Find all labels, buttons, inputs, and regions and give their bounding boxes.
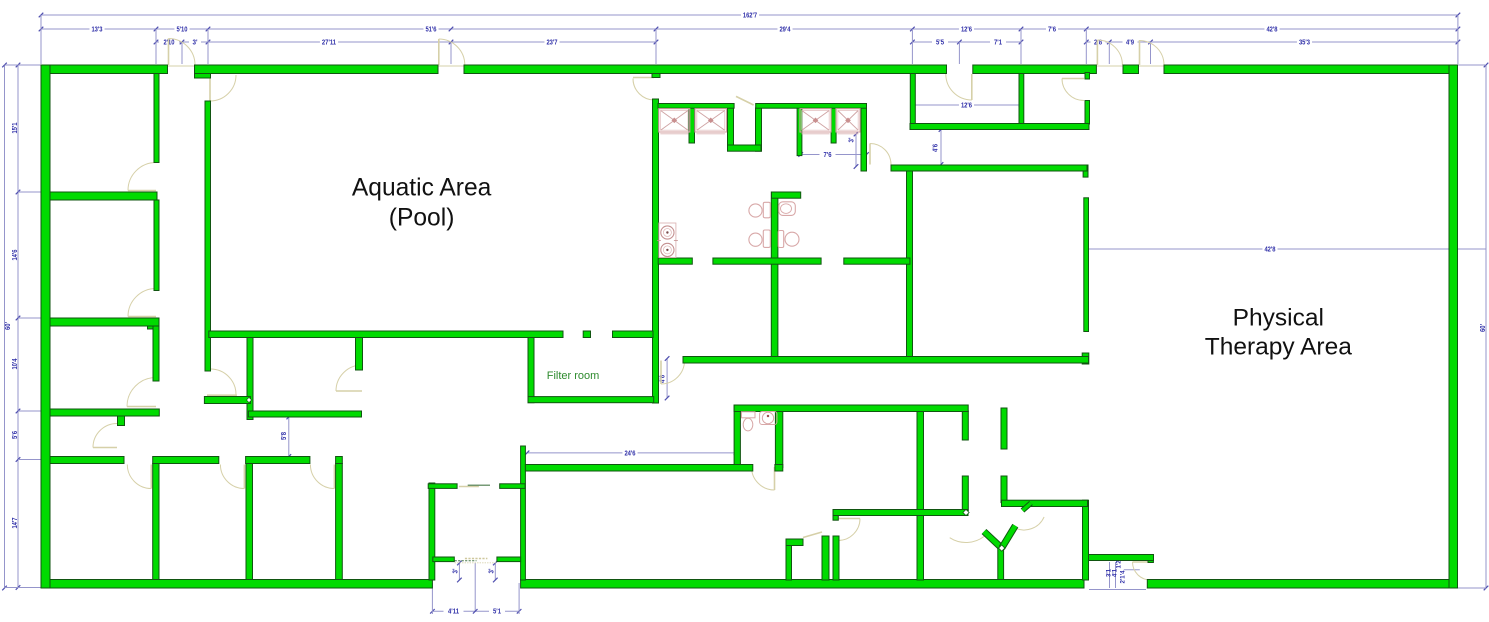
svg-text:7'6: 7'6 [824,150,832,159]
svg-text:4'6: 4'6 [932,144,939,152]
svg-text:60': 60' [1478,324,1487,332]
svg-text:4'1: 4'1 [1111,569,1118,577]
svg-text:42'8: 42'8 [1264,244,1275,253]
svg-text:15'1: 15'1 [10,122,19,133]
svg-text:24'6: 24'6 [624,448,635,457]
svg-text:23'7: 23'7 [546,37,557,46]
svg-text:3': 3' [193,37,198,46]
svg-text:162'7: 162'7 [743,10,757,19]
svg-text:29'4: 29'4 [779,24,790,33]
svg-text:12'6: 12'6 [961,100,972,109]
svg-text:2'1'4: 2'1'4 [1119,570,1126,583]
svg-text:Aquatic Area: Aquatic Area [352,175,492,202]
svg-text:Filter room: Filter room [547,370,600,382]
svg-text:3': 3' [452,568,459,573]
svg-text:60': 60' [3,322,12,330]
svg-text:5'5: 5'5 [936,37,944,46]
svg-text:7'6: 7'6 [1048,24,1056,33]
svg-text:(Pool): (Pool) [389,205,455,232]
svg-text:5'1: 5'1 [493,607,501,616]
svg-text:5'6: 5'6 [10,431,19,439]
svg-text:10'4: 10'4 [10,358,19,369]
svg-text:13'3: 13'3 [91,24,102,33]
svg-text:Physical: Physical [1233,305,1324,332]
svg-text:7'1: 7'1 [994,37,1002,46]
svg-text:27'11: 27'11 [322,37,336,46]
svg-text:12'6: 12'6 [961,24,972,33]
svg-text:3': 3' [488,568,495,573]
svg-text:42'8: 42'8 [1266,24,1277,33]
svg-text:4'9: 4'9 [1126,37,1134,46]
svg-text:51'6: 51'6 [425,24,436,33]
svg-text:4'11: 4'11 [448,607,459,616]
svg-text:5'10: 5'10 [176,24,187,33]
svg-text:3': 3' [848,137,855,142]
svg-text:14'6: 14'6 [10,249,19,260]
svg-text:35'3: 35'3 [1299,37,1310,46]
svg-text:5'8: 5'8 [281,432,288,440]
svg-text:Therapy Area: Therapy Area [1205,334,1352,361]
svg-text:14'7: 14'7 [10,517,19,528]
